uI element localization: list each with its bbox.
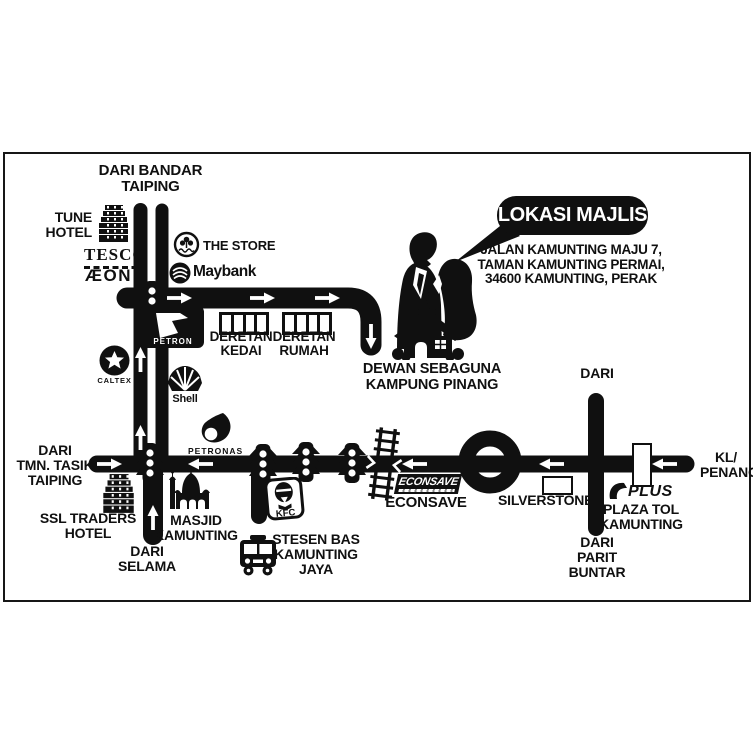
label-dari-north: DARI — [576, 366, 618, 381]
plus-swoosh-icon — [607, 479, 627, 501]
aeon-logo: ÆON — [85, 266, 132, 286]
label-kl-penang: KL/ PENANG — [700, 450, 752, 480]
econsave-wordmark: ECONSAVE — [398, 477, 460, 488]
label-econsave: ECONSAVE — [384, 495, 468, 511]
label-dari-tmn-tasik: DARI TMN. TASIK TAIPING — [14, 443, 96, 488]
petron-wordmark: PETRON — [142, 337, 204, 346]
label-deretan-rumah: DERETAN RUMAH — [269, 330, 339, 359]
bubble-title: LOKASI MAJLIS — [498, 204, 647, 227]
label-ssl-traders-hotel: SSL TRADERS HOTEL — [34, 511, 142, 541]
label-the-store: THE STORE — [203, 239, 263, 253]
label-deretan-kedai: DERETAN KEDAI — [206, 330, 276, 359]
caltex-logo-icon — [99, 345, 130, 376]
label-caltex: CALTEX — [95, 377, 134, 385]
label-dari-selama: DARI SELAMA — [110, 544, 184, 574]
the-store-logo-icon — [173, 231, 200, 258]
shell-logo-icon — [167, 364, 203, 394]
maybank-logo-icon — [169, 262, 191, 284]
kfc-wordmark: KFC — [275, 507, 296, 520]
venue-address: JALAN KAMUNTING MAJU 7, TAMAN KAMUNTING … — [465, 243, 677, 287]
label-tune-hotel: TUNE HOTEL — [36, 210, 92, 240]
petron-logo: PETRON — [142, 306, 204, 348]
label-plaza-tol: PLAZA TOL KAMUNTING — [594, 502, 688, 532]
plus-wordmark: PLUS — [628, 483, 673, 501]
hotel-building-icon — [96, 204, 130, 244]
traffic-light-icon — [292, 442, 320, 482]
venue-house-icon — [391, 292, 465, 360]
location-map: DARI BANDAR TAIPING TUNE HOTEL TESCO ÆON… — [0, 0, 753, 753]
label-stesen-bas: STESEN BAS KAMUNTING JAYA — [268, 532, 364, 577]
econsave-tagline-strip — [398, 489, 455, 492]
traffic-light-icon — [338, 443, 366, 483]
label-venue-name: DEWAN SEBAGUNA KAMPUNG PINANG — [361, 362, 503, 393]
label-dari-bandar-taiping: DARI BANDAR TAIPING — [88, 163, 213, 195]
label-masjid-kamunting: MASJID KAMUNTING — [150, 513, 242, 543]
ssl-hotel-building-icon — [99, 473, 137, 515]
petronas-logo-icon — [197, 411, 233, 447]
label-shell: Shell — [167, 394, 203, 406]
label-petronas: PETRONAS — [188, 447, 242, 456]
plus-logo: PLUS — [607, 479, 673, 501]
mosque-icon — [167, 467, 215, 513]
kfc-logo-icon: KFC — [264, 477, 306, 523]
label-dari-parit-buntar: DARI PARIT BUNTAR — [566, 535, 628, 580]
label-silverstone: SILVERSTONE — [498, 493, 590, 508]
speech-bubble: LOKASI MAJLIS — [497, 196, 648, 235]
label-maybank: Maybank — [193, 263, 256, 281]
econsave-logo: ECONSAVE — [394, 474, 462, 494]
